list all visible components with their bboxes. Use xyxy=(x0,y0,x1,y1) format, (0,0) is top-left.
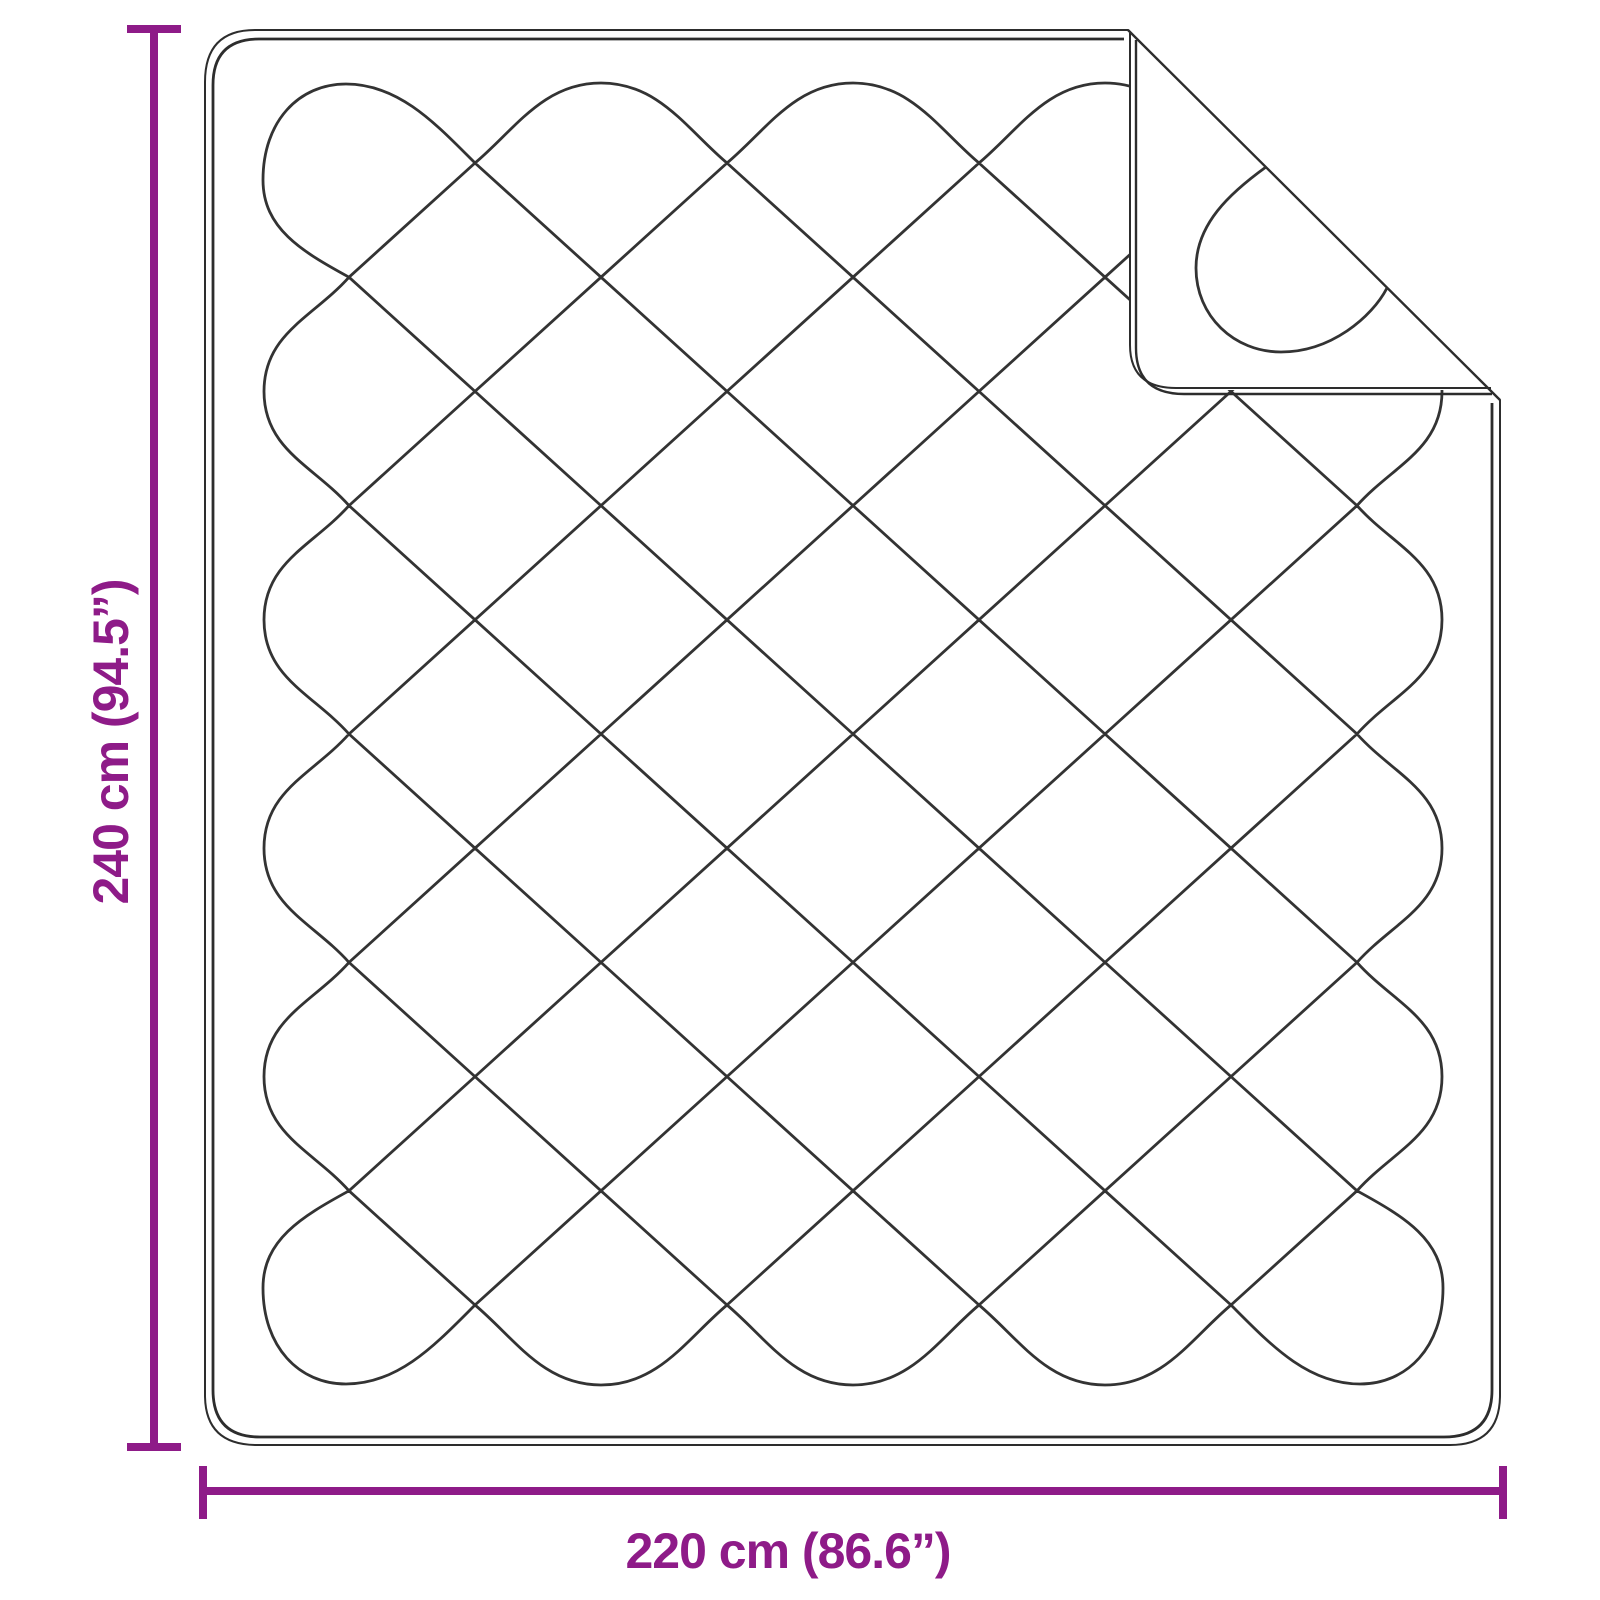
product-dimension-diagram: 240 cm (94.5”) 220 cm (86.6”) xyxy=(0,0,1600,1600)
width-dimension-line xyxy=(203,1466,1503,1519)
width-label: 220 cm (86.6”) xyxy=(625,1523,950,1579)
height-label: 240 cm (94.5”) xyxy=(83,579,139,904)
folded-corner-flap xyxy=(1128,30,1500,400)
blanket-dimension-illustration: 240 cm (94.5”) 220 cm (86.6”) xyxy=(0,0,1600,1600)
